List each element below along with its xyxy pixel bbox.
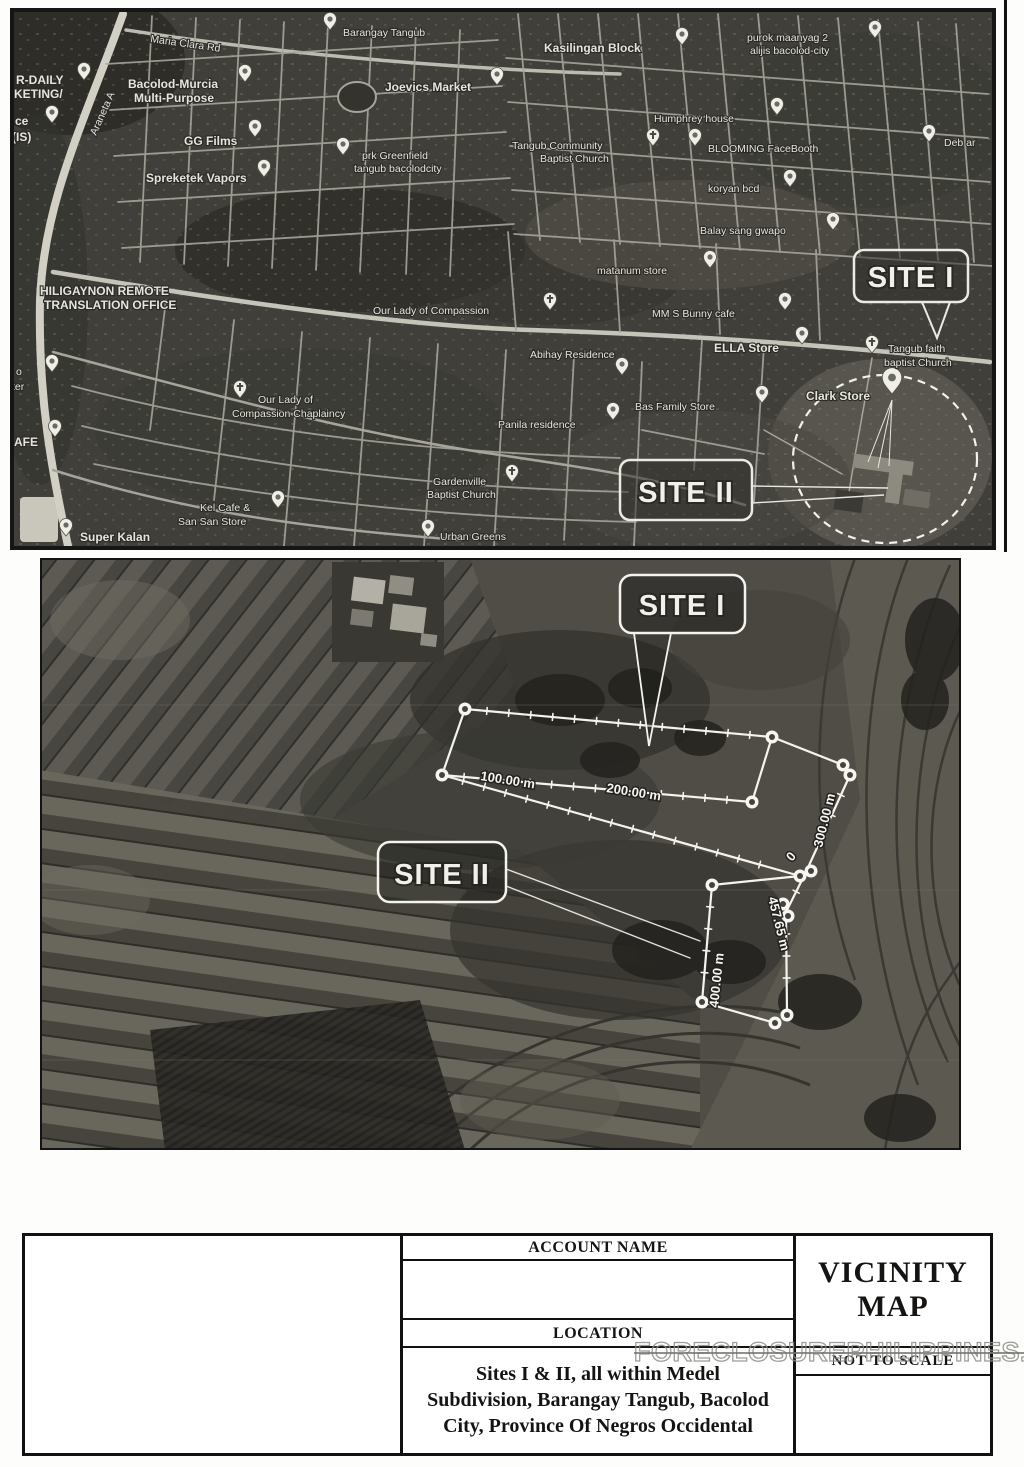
map-place-label: Barangay Tangub — [343, 27, 425, 39]
map-place-label: Urban Greens — [440, 531, 506, 543]
map-place-label: ELLA Store — [714, 341, 779, 355]
map-place-label: San San Store — [178, 516, 246, 528]
map-place-label: Balay sang gwapo — [700, 225, 786, 237]
map-place-label: Humphrey house — [654, 113, 734, 125]
map-place-label: Panila residence — [498, 419, 576, 431]
map-place-label: Bacolod-Murcia — [128, 77, 218, 91]
scale-note: NOT TO SCALE — [796, 1348, 990, 1376]
location-line: Subdivision, Barangay Tangub, Bacolod — [403, 1387, 793, 1413]
map-place-label: Clark Store — [806, 389, 870, 403]
map-place-label: GG Films — [184, 134, 238, 148]
map-place-label: Spreketek Vapors — [146, 171, 247, 185]
site1-label-top: SITE I — [868, 262, 955, 294]
map-place-label: matanum store — [597, 265, 667, 277]
info-table: ACCOUNT NAME LOCATION Sites I & II, all … — [22, 1233, 993, 1456]
map-place-label: Gardenville — [433, 476, 486, 488]
map-place-label: Abihay Residence — [530, 349, 615, 361]
map-place-label: alijis bacolod-city — [750, 45, 830, 57]
city-vicinity-satellite-map: SITE I SITE II Araneta AMaria Clara RdBa… — [10, 8, 996, 550]
table-right-column: VICINITY MAP NOT TO SCALE — [796, 1236, 990, 1453]
map-place-label: Super Kalan — [80, 530, 150, 544]
location-line: City, Province Of Negros Occidental — [403, 1413, 793, 1439]
map-place-label: Our Lady of Compassion — [373, 305, 489, 317]
table-empty-right-cell — [796, 1376, 990, 1453]
map-place-label: koryan bcd — [708, 183, 760, 195]
map-place-label: TRANSLATION OFFICE — [44, 298, 176, 312]
farm-compound-buildings — [332, 562, 444, 662]
map-place-label: Compassion Chaplaincy — [232, 408, 346, 420]
map-place-label: (IS) — [14, 130, 31, 144]
location-header: LOCATION — [403, 1320, 793, 1348]
map-title-line: VICINITY — [796, 1256, 990, 1290]
vicinity-map-document: SITE I SITE II Araneta AMaria Clara RdBa… — [0, 0, 1024, 1467]
site1-label-bottom: SITE I — [639, 590, 726, 622]
map-place-label: Baptist Church — [427, 489, 496, 501]
map-title: VICINITY MAP — [796, 1236, 990, 1348]
account-name-header: ACCOUNT NAME — [403, 1236, 793, 1261]
map-place-label: HILIGAYNON REMOTE — [40, 284, 169, 298]
site-plan-graphic: SITE I SITE II 100.00 m200.00 m300.00 m0… — [42, 560, 959, 1148]
map-place-label: Our Lady of — [258, 394, 313, 406]
map-place-label: Tangub faith — [888, 343, 945, 355]
map-title-line: MAP — [796, 1290, 990, 1324]
map-place-label: Bas Family Store — [635, 401, 715, 413]
map-place-label: ce — [15, 114, 29, 128]
site2-label-bottom: SITE II — [394, 859, 490, 891]
map-place-label: KETING/ — [14, 87, 63, 101]
location-line: Sites I & II, all within Medel — [403, 1361, 793, 1387]
map-place-label: Kasilingan Block — [544, 41, 641, 55]
map-place-label: Joevics Market — [385, 80, 471, 94]
table-empty-left-cell — [25, 1236, 403, 1453]
map-place-label: ter — [14, 381, 25, 393]
map-place-label: Baptist Church — [540, 153, 609, 165]
map-place-label: prk Greenfield — [362, 150, 428, 162]
map-place-label: Multi-Purpose — [134, 91, 214, 105]
account-name-value — [403, 1261, 793, 1320]
map-place-label: purok maanyag 2 — [747, 32, 828, 44]
map-place-label: o — [16, 366, 22, 378]
city-map-graphic: SITE I SITE II Araneta AMaria Clara RdBa… — [14, 12, 992, 546]
site-plan-satellite-map: SITE I SITE II 100.00 m200.00 m300.00 m0… — [40, 558, 961, 1150]
map-place-label: Deb ar — [944, 137, 976, 149]
map-place-label: baptist Church — [884, 357, 952, 369]
site2-label-top: SITE II — [638, 477, 734, 509]
map-place-label: tangub bacolodcity — [354, 163, 442, 175]
page-edge-line — [1004, 0, 1007, 552]
map-place-label: Tangub Community — [512, 140, 603, 152]
map-place-label: BLOOMING FaceBooth — [708, 143, 818, 155]
map-place-label: AFE — [14, 435, 38, 449]
table-middle-column: ACCOUNT NAME LOCATION Sites I & II, all … — [403, 1236, 796, 1453]
location-value: Sites I & II, all within Medel Subdivisi… — [403, 1348, 793, 1453]
map-place-label: Kel Cafe & — [200, 502, 250, 514]
map-place-label: MM S Bunny cafe — [652, 308, 735, 320]
map-place-label: R-DAILY — [16, 73, 64, 87]
